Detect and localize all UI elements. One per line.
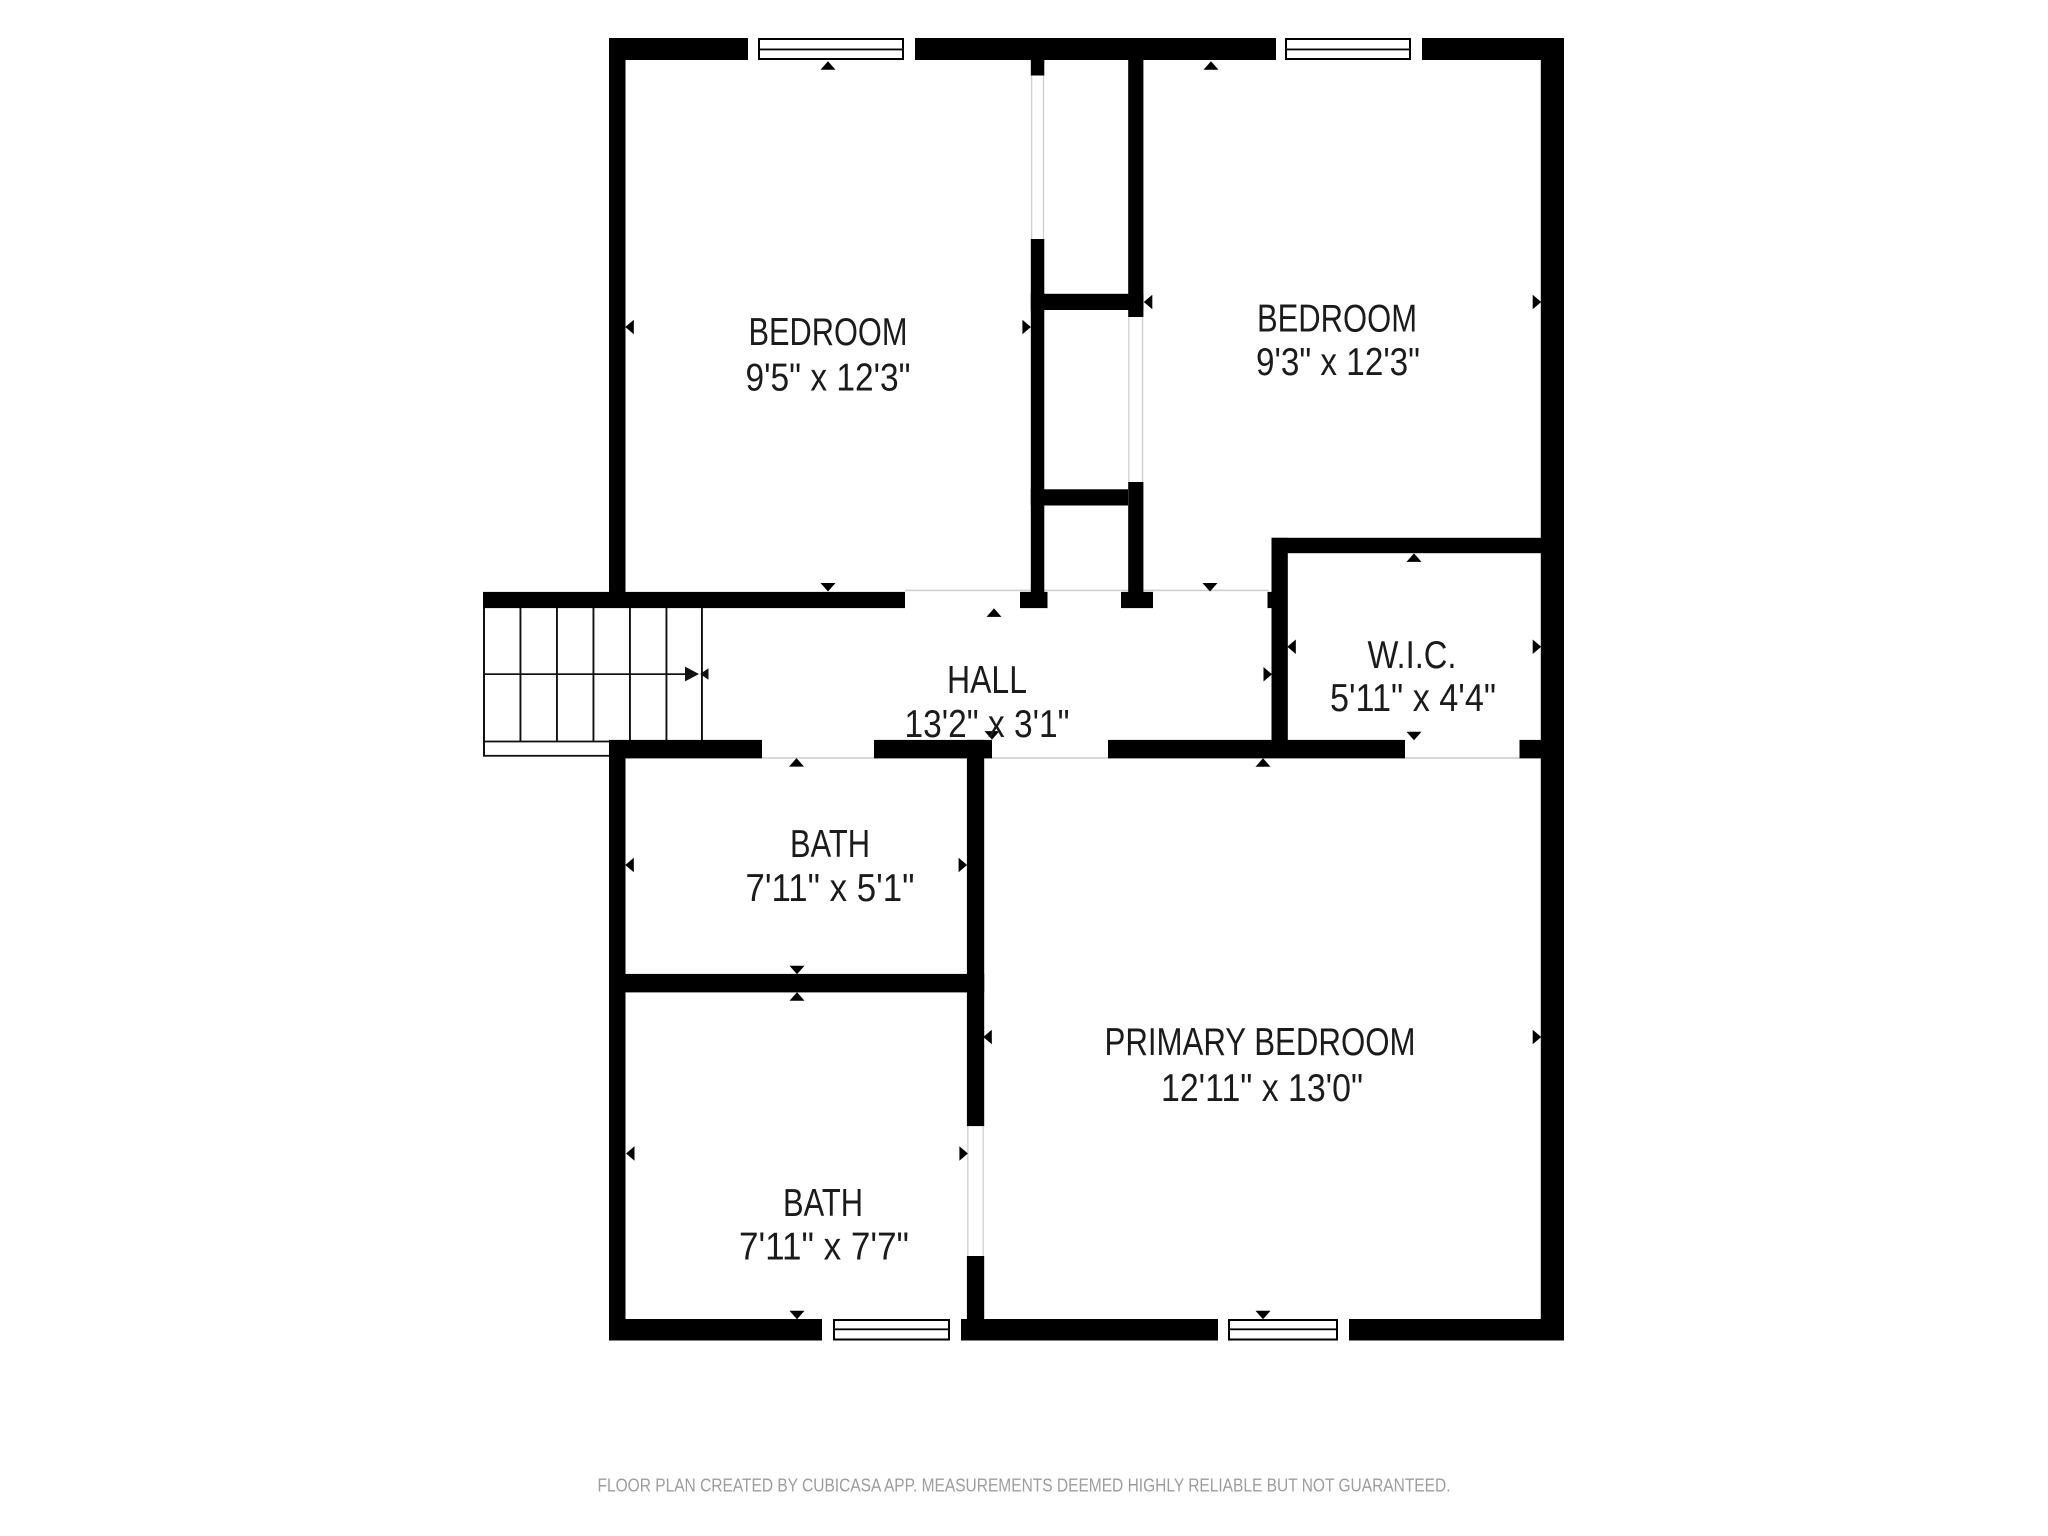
svg-text:7'11" x 7'7": 7'11" x 7'7" xyxy=(739,1226,909,1269)
svg-text:FLOOR PLAN CREATED BY CUBICASA: FLOOR PLAN CREATED BY CUBICASA APP. MEAS… xyxy=(598,1475,1451,1495)
svg-text:13'2" x 3'1": 13'2" x 3'1" xyxy=(905,703,1070,746)
svg-text:BEDROOM: BEDROOM xyxy=(1257,298,1417,341)
svg-text:12'11" x 13'0": 12'11" x 13'0" xyxy=(1161,1067,1363,1110)
svg-text:W.I.C.: W.I.C. xyxy=(1368,634,1457,677)
svg-text:BATH: BATH xyxy=(790,823,870,866)
svg-text:BEDROOM: BEDROOM xyxy=(749,311,908,354)
svg-text:BATH: BATH xyxy=(783,1182,863,1225)
svg-text:9'3" x 12'3": 9'3" x 12'3" xyxy=(1256,341,1420,384)
svg-text:7'11" x 5'1": 7'11" x 5'1" xyxy=(746,867,915,910)
svg-text:5'11" x 4'4": 5'11" x 4'4" xyxy=(1330,677,1496,720)
svg-text:PRIMARY BEDROOM: PRIMARY BEDROOM xyxy=(1105,1021,1416,1064)
svg-text:9'5" x 12'3": 9'5" x 12'3" xyxy=(746,357,911,400)
svg-text:HALL: HALL xyxy=(947,659,1027,702)
